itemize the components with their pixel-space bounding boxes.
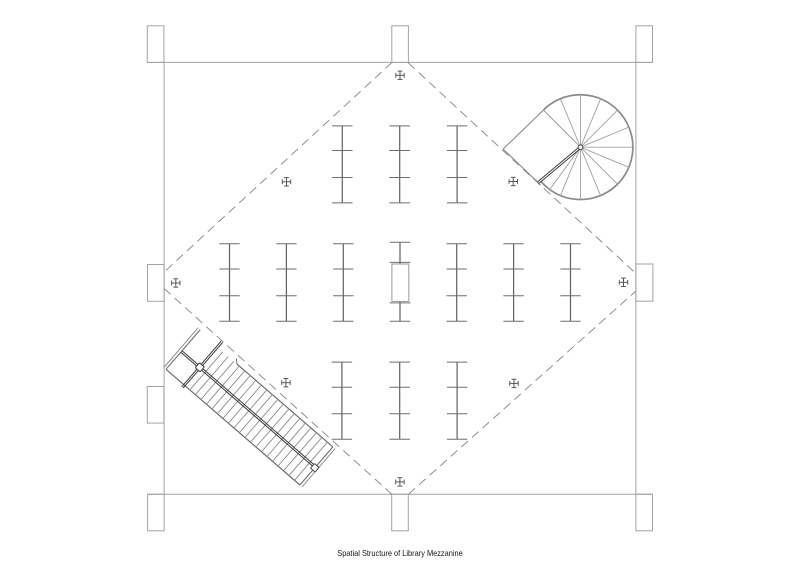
svg-text:Spatial Structure of Library M: Spatial Structure of Library Mezzanine	[337, 548, 463, 558]
